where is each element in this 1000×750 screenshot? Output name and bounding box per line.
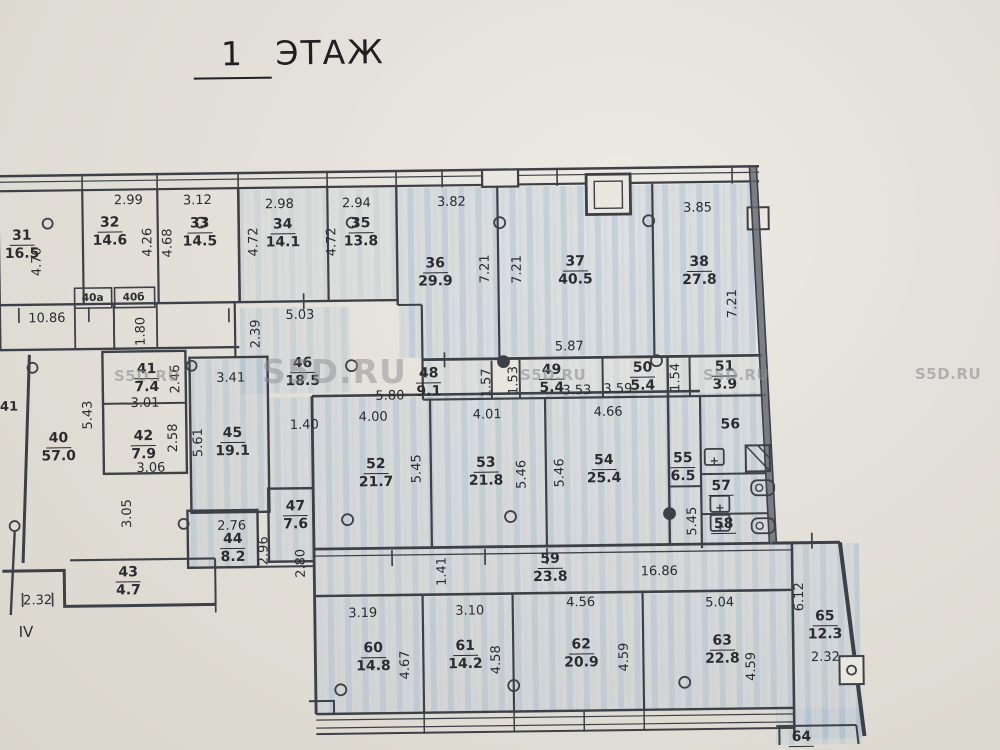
- watermark: S5D.RU: [520, 366, 586, 384]
- scanned-floor-plan-photo: 1ЭТАЖ 3116.5 3214.6 3314.5 3414.1 3513.8…: [0, 0, 1000, 750]
- floor-number: 1: [193, 34, 272, 80]
- dimension-label: 3.53: [562, 383, 591, 398]
- dimension-label: 4.68: [160, 228, 175, 257]
- dimension-label: 7.21: [478, 254, 493, 283]
- room-label: 448.2: [220, 532, 246, 565]
- room-label: 505.4: [630, 360, 656, 393]
- dimension-label: 5.45: [685, 507, 700, 536]
- room-label: 477.6: [283, 499, 309, 532]
- room-label: 4519.1: [215, 426, 250, 459]
- dimension-label: 2.32: [23, 593, 52, 608]
- room-label: 6512.3: [808, 609, 843, 642]
- dimension-label: 2.58: [166, 423, 181, 452]
- room-label: 64: [789, 730, 815, 748]
- room-label: 5923.8: [533, 552, 568, 585]
- dimension-label: 2.80: [293, 549, 308, 578]
- closet-label: 40б: [123, 291, 145, 303]
- dimension-label: 4.56: [566, 595, 595, 610]
- room-label: 5321.8: [468, 455, 503, 488]
- room-label: 6114.2: [448, 639, 483, 672]
- room-label: 489.1: [416, 366, 442, 399]
- dimension-label: 4.67: [398, 650, 413, 679]
- dimension-label: 6.12: [792, 582, 807, 611]
- dimension-label: 7.21: [725, 289, 740, 318]
- dimension-label: 4.66: [594, 405, 623, 420]
- dimension-label: 2.96: [256, 536, 271, 565]
- room-label: 3214.6: [92, 215, 127, 248]
- section-marker: IV: [19, 623, 34, 641]
- room-label: 3629.9: [418, 256, 453, 289]
- dimension-label: 7.21: [510, 255, 525, 284]
- dimension-label: 3.12: [183, 193, 212, 208]
- dimension-label: 4.72: [246, 227, 261, 256]
- dimension-label: 3.01: [130, 396, 159, 411]
- partial-room-label: 41: [0, 400, 18, 415]
- dimension-label: 5.61: [191, 428, 206, 457]
- floor-word: ЭТАЖ: [275, 32, 385, 72]
- dimension-label: 2.98: [265, 197, 294, 212]
- watermark: S5D.RU: [915, 365, 981, 383]
- floor-title: 1ЭТАЖ: [193, 32, 385, 80]
- dimension-label: 4.26: [140, 228, 155, 257]
- dimension-label: 2.99: [114, 193, 143, 208]
- closet-label: 40а: [82, 292, 104, 304]
- dimension-label: 10.86: [28, 311, 65, 326]
- room-label: 6322.8: [705, 633, 740, 666]
- dimension-label: 2.32: [811, 650, 840, 665]
- room-label: 58: [711, 517, 737, 535]
- room-label: 3314.5: [182, 216, 217, 249]
- dimension-label: 3.19: [348, 606, 377, 621]
- dimension-label: 1.80: [133, 317, 148, 346]
- dimension-label: 4.59: [617, 643, 632, 672]
- dimension-label: 3.10: [455, 603, 484, 618]
- room-label: 3740.5: [558, 254, 593, 287]
- dimension-label: 3.82: [437, 195, 466, 210]
- dimension-label: 5.45: [409, 454, 424, 483]
- dimension-label: 3.06: [136, 461, 165, 476]
- dimension-label: 5.43: [80, 401, 95, 430]
- dimension-label: 1.54: [668, 363, 683, 392]
- dimension-label: 4.00: [359, 410, 388, 425]
- room-label: 6014.8: [356, 641, 391, 674]
- watermark: S5D.RU: [703, 366, 769, 384]
- room-label: 3414.1: [265, 217, 300, 250]
- door-icon: [43, 219, 53, 229]
- room-label: 5221.7: [358, 457, 393, 490]
- dimension-label: 4.72: [324, 227, 339, 256]
- dimension-label: 3.41: [216, 371, 245, 386]
- dimension-label: 2.94: [342, 196, 371, 211]
- dimension-label: 3.59: [603, 381, 632, 396]
- room-label: 56: [718, 417, 744, 434]
- dimension-label: 2.39: [248, 319, 263, 348]
- dimension-label: 4.01: [473, 407, 502, 422]
- door-icon: [10, 521, 20, 531]
- dimension-label: 4.70: [29, 247, 44, 276]
- dimension-label: 1.57: [479, 368, 494, 397]
- dimension-label: 1.40: [290, 418, 319, 433]
- dimension-label: 5.04: [705, 595, 734, 610]
- dimension-label: 2.76: [217, 519, 246, 534]
- dimension-label: 16.86: [641, 564, 678, 579]
- room-label: 434.7: [115, 565, 141, 598]
- dimension-label: 1.41: [435, 557, 450, 586]
- watermark: S5D.RU: [262, 352, 407, 391]
- dimension-label: 5.46: [552, 458, 567, 487]
- wall-pier: [482, 169, 518, 186]
- dimension-label: 4.58: [489, 645, 504, 674]
- room-label: 427.9: [131, 429, 157, 462]
- dimension-label: 5.87: [555, 339, 584, 354]
- room-label: 3513.8: [343, 216, 378, 249]
- room-label: 5425.4: [586, 453, 621, 486]
- dimension-label: 3.05: [120, 499, 135, 528]
- dimension-label: 4.59: [744, 652, 759, 681]
- dimension-label: 3.85: [683, 200, 712, 215]
- room-label: 3827.8: [682, 255, 717, 288]
- elevator-shaft: [586, 174, 631, 215]
- door-icon: [664, 508, 675, 519]
- room-label: 57: [708, 479, 734, 497]
- room-label: 4057.0: [41, 431, 76, 464]
- dimension-label: 5.46: [514, 460, 529, 489]
- dimension-label: 5.03: [285, 308, 314, 323]
- watermark: S5D.RU: [114, 367, 180, 385]
- room-label: 6220.9: [564, 637, 599, 670]
- room-label: 556.5: [670, 451, 696, 484]
